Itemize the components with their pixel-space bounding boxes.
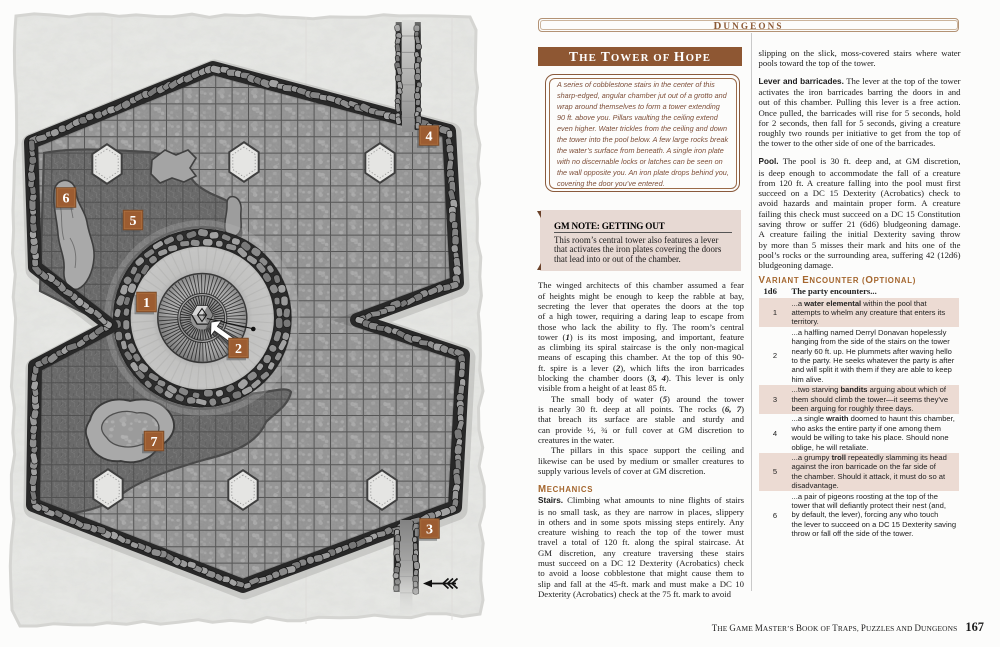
svg-text:4: 4 bbox=[426, 129, 433, 144]
svg-text:6: 6 bbox=[63, 191, 70, 206]
svg-text:3: 3 bbox=[426, 522, 433, 537]
svg-text:5: 5 bbox=[130, 214, 137, 229]
svg-text:2: 2 bbox=[235, 342, 242, 357]
svg-text:1: 1 bbox=[143, 296, 150, 311]
svg-text:7: 7 bbox=[151, 435, 158, 450]
